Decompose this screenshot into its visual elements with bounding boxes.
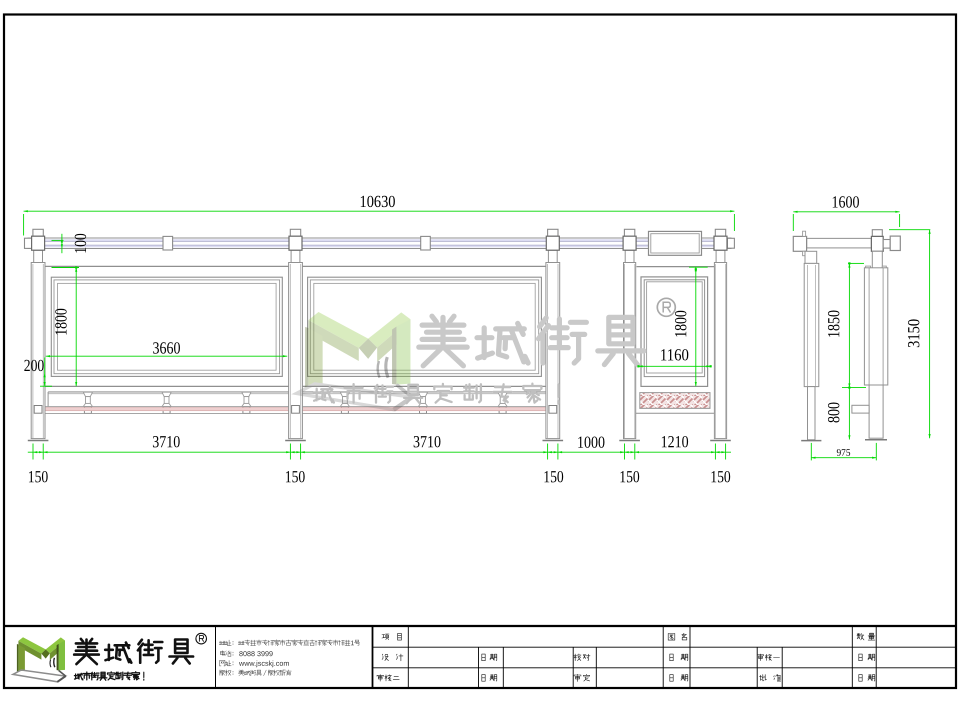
svg-text:3710: 3710	[413, 432, 441, 451]
svg-text:1000: 1000	[577, 433, 605, 452]
svg-text:1160: 1160	[660, 345, 689, 364]
svg-text:200: 200	[24, 356, 45, 375]
svg-text:3150: 3150	[904, 319, 923, 348]
svg-text:100: 100	[71, 233, 90, 254]
svg-text:150: 150	[28, 467, 49, 486]
svg-text:1800: 1800	[671, 310, 690, 338]
svg-text:1: 1	[350, 640, 354, 647]
svg-text:150: 150	[619, 467, 640, 486]
svg-text:1600: 1600	[831, 192, 859, 211]
svg-text:150: 150	[710, 467, 731, 486]
svg-text:1850: 1850	[824, 310, 843, 338]
svg-text:1800: 1800	[51, 308, 70, 336]
svg-text:150: 150	[285, 467, 306, 486]
svg-text:1210: 1210	[661, 432, 689, 451]
svg-text:150: 150	[543, 467, 564, 486]
svg-text:3710: 3710	[152, 432, 180, 451]
svg-text:8088 3999: 8088 3999	[239, 649, 273, 658]
svg-text:800: 800	[824, 402, 843, 423]
svg-text:3660: 3660	[152, 338, 180, 357]
svg-text:10630: 10630	[359, 192, 395, 211]
svg-text:975: 975	[836, 448, 850, 459]
svg-text:www.jscskj.com: www.jscskj.com	[238, 659, 289, 668]
